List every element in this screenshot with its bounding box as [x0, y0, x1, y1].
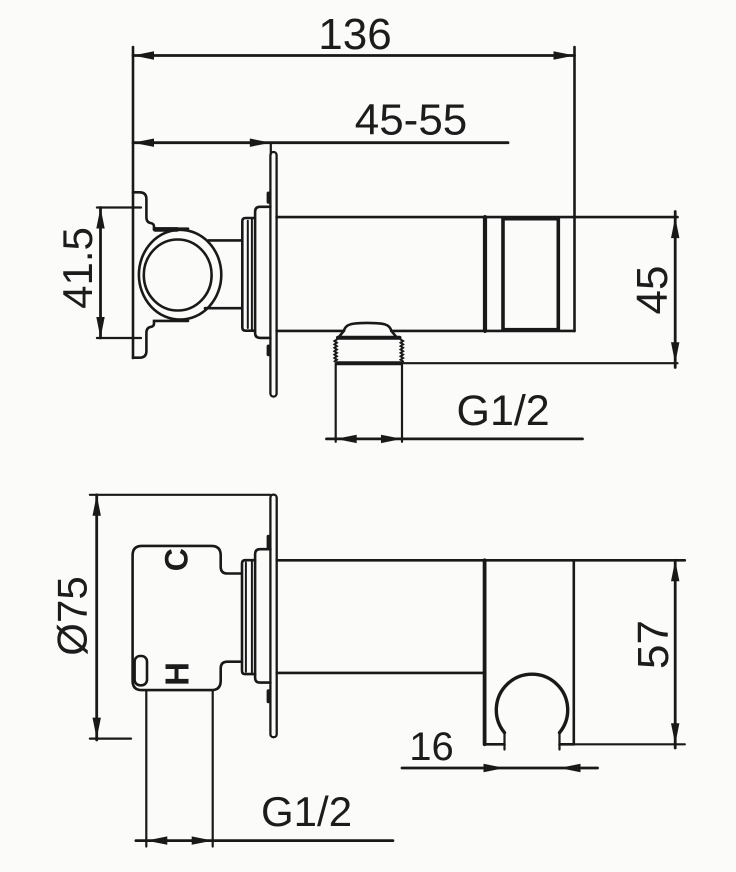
- svg-text:41.5: 41.5: [54, 227, 101, 309]
- svg-text:136: 136: [318, 10, 391, 59]
- svg-text:45: 45: [628, 266, 677, 315]
- svg-text:G1/2: G1/2: [261, 788, 352, 835]
- svg-text:57: 57: [629, 620, 678, 669]
- svg-text:G1/2: G1/2: [457, 387, 550, 435]
- svg-text:C: C: [159, 548, 195, 571]
- svg-text:16: 16: [409, 725, 454, 769]
- svg-text:Ø75: Ø75: [49, 576, 96, 655]
- svg-text:45-55: 45-55: [355, 96, 468, 145]
- svg-text:H: H: [159, 662, 196, 686]
